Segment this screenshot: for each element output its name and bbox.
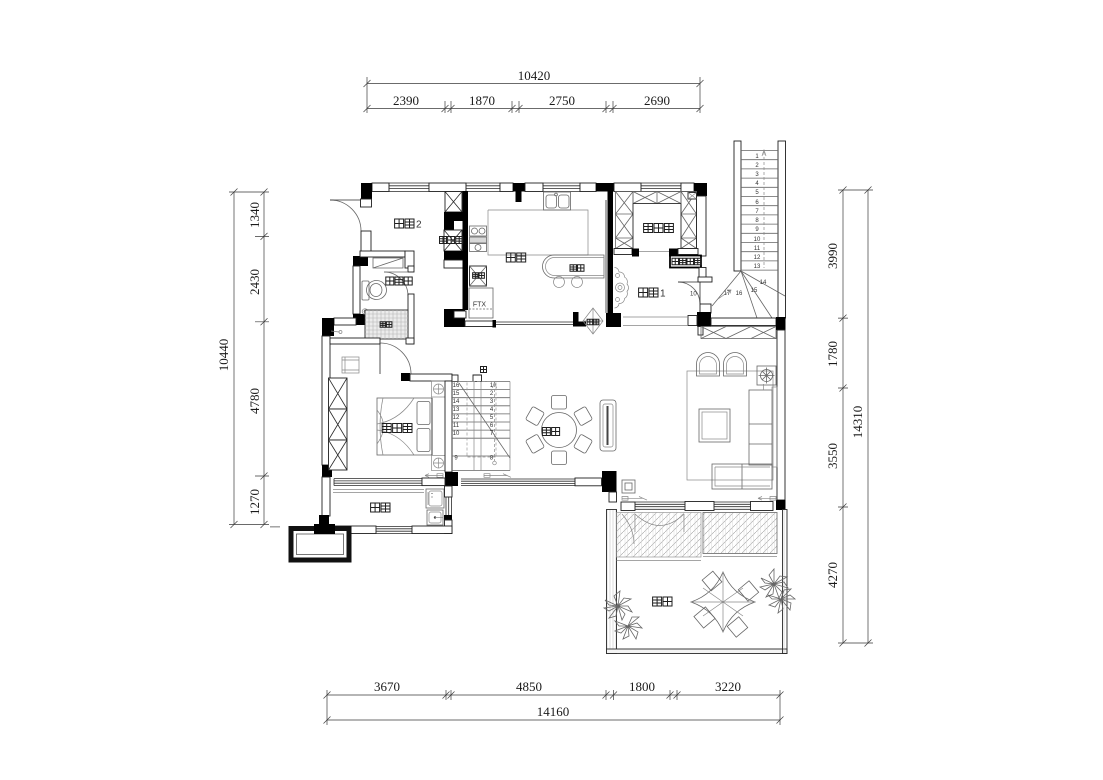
svg-text:14: 14: [760, 280, 767, 286]
svg-text:10: 10: [754, 237, 761, 243]
svg-text:1800: 1800: [629, 679, 655, 694]
svg-text:3670: 3670: [374, 679, 400, 694]
svg-text:4850: 4850: [516, 679, 542, 694]
svg-text:3220: 3220: [715, 679, 741, 694]
svg-text:14310: 14310: [850, 406, 865, 439]
svg-text:4270: 4270: [825, 562, 840, 588]
svg-text:2430: 2430: [247, 269, 262, 295]
svg-text:2750: 2750: [549, 93, 575, 108]
svg-text:12: 12: [453, 415, 460, 421]
svg-text:2: 2: [416, 220, 422, 231]
svg-text:16: 16: [736, 291, 743, 297]
svg-text:13: 13: [453, 407, 460, 413]
svg-text:3550: 3550: [825, 443, 840, 469]
svg-text:10420: 10420: [518, 68, 551, 83]
svg-text:10: 10: [453, 431, 460, 437]
svg-text:3990: 3990: [825, 243, 840, 269]
svg-text:14: 14: [453, 399, 460, 405]
svg-text:1780: 1780: [825, 341, 840, 367]
svg-text:16: 16: [453, 383, 460, 389]
svg-text:1340: 1340: [247, 202, 262, 228]
svg-text:1270: 1270: [247, 489, 262, 515]
svg-text:1870: 1870: [469, 93, 495, 108]
svg-text:15: 15: [751, 288, 758, 294]
svg-text:10: 10: [690, 292, 697, 298]
svg-text:11: 11: [754, 246, 761, 252]
svg-text:14160: 14160: [537, 704, 570, 719]
svg-text:2690: 2690: [644, 93, 670, 108]
svg-text:10440: 10440: [216, 339, 231, 372]
svg-text:11: 11: [453, 423, 460, 429]
svg-text:15: 15: [453, 391, 460, 397]
svg-text:13: 13: [754, 264, 761, 270]
svg-text:2390: 2390: [393, 93, 419, 108]
svg-text:12: 12: [754, 255, 761, 261]
svg-text:4780: 4780: [247, 388, 262, 414]
svg-text:FTX: FTX: [473, 302, 487, 309]
svg-text:1: 1: [660, 289, 666, 300]
